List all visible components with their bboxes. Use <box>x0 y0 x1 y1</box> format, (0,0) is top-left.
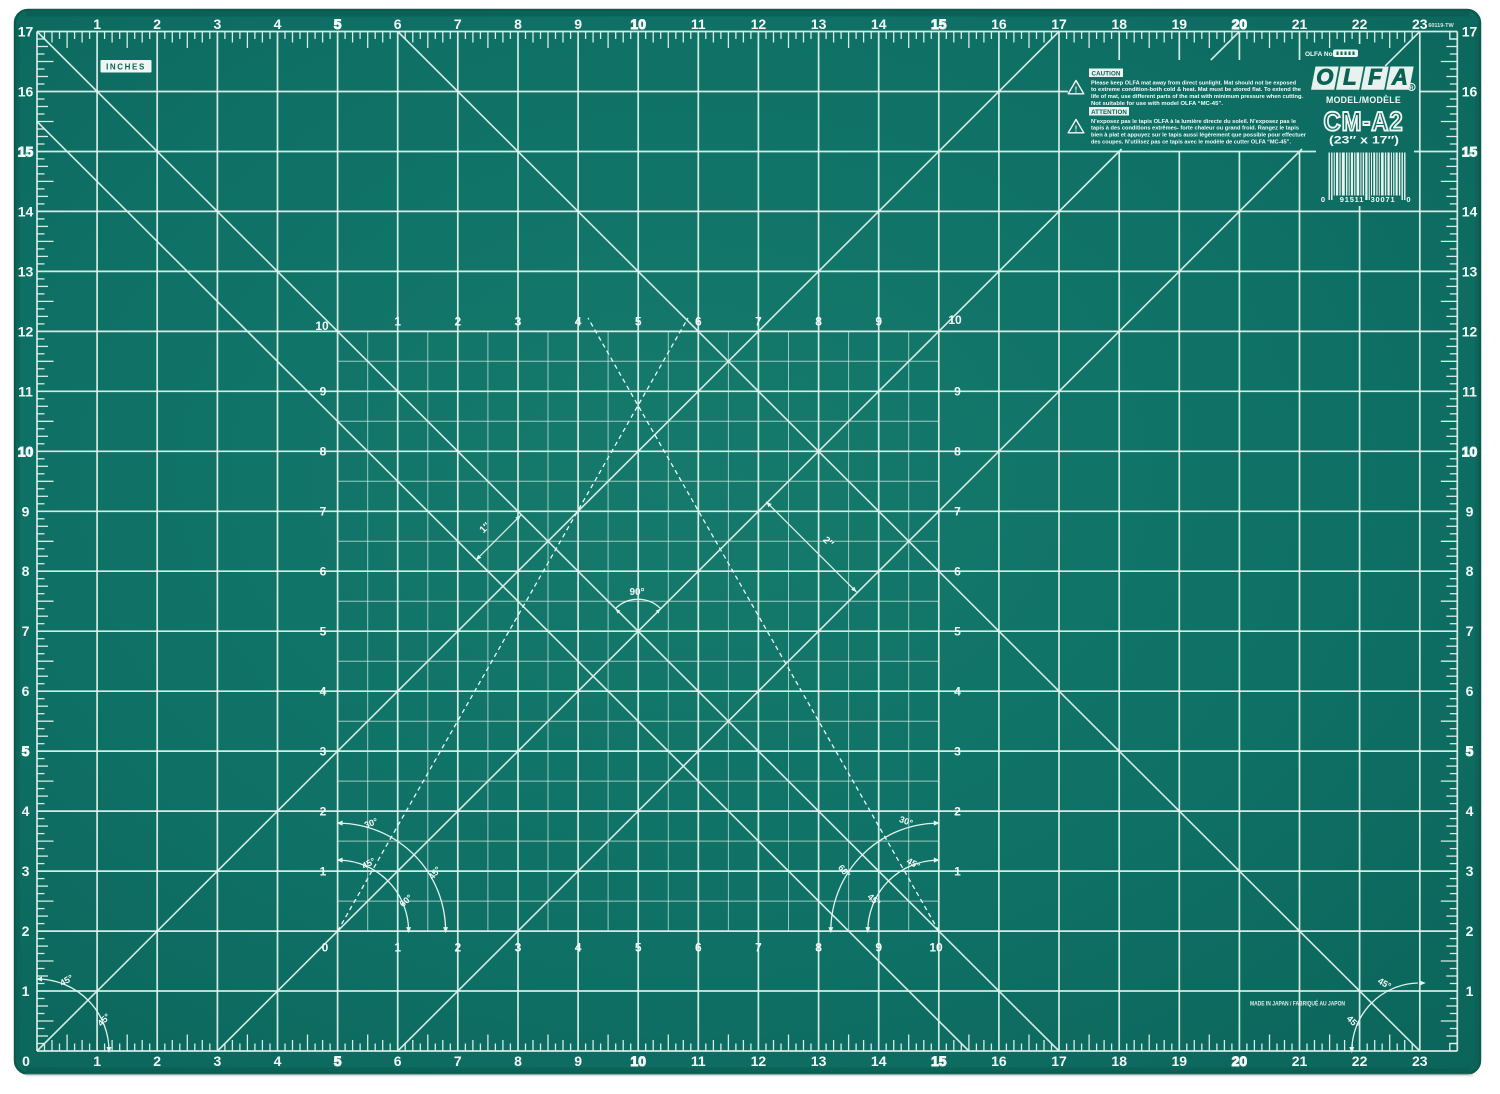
svg-text:6: 6 <box>22 683 30 699</box>
svg-text:9: 9 <box>574 1053 582 1069</box>
svg-text:6: 6 <box>695 315 702 329</box>
svg-text:6: 6 <box>320 565 327 579</box>
svg-text:MADE IN JAPAN / FABRIQUÉ AU JA: MADE IN JAPAN / FABRIQUÉ AU JAPON <box>1250 1000 1345 1008</box>
svg-text:5: 5 <box>334 1053 342 1069</box>
svg-text:5: 5 <box>635 315 642 329</box>
svg-text:8: 8 <box>1466 563 1474 579</box>
svg-text:CAUTION: CAUTION <box>1092 70 1121 77</box>
svg-text:91511: 91511 <box>1340 195 1364 204</box>
svg-text:8: 8 <box>22 563 30 579</box>
svg-text:6: 6 <box>954 565 961 579</box>
svg-text:Not suitable for use with mode: Not suitable for use with model OLFA “MC… <box>1091 101 1223 107</box>
svg-text:to extreme condition-both cold: to extreme condition-both cold & heat. M… <box>1091 87 1302 93</box>
svg-text:4: 4 <box>274 1053 282 1069</box>
svg-text:7: 7 <box>320 505 327 519</box>
svg-text:13: 13 <box>1462 263 1478 279</box>
svg-text:N’exposez pas le tapis OLFA à: N’exposez pas le tapis OLFA à la lumière… <box>1091 119 1297 125</box>
svg-text:1: 1 <box>320 864 327 878</box>
svg-text:3: 3 <box>515 315 522 329</box>
svg-text:14: 14 <box>18 203 34 219</box>
svg-text:2: 2 <box>153 16 161 32</box>
svg-text:4: 4 <box>320 685 327 699</box>
svg-text:8: 8 <box>514 16 522 32</box>
svg-text:7: 7 <box>454 16 462 32</box>
svg-text:3: 3 <box>320 744 327 758</box>
svg-text:8: 8 <box>954 445 961 459</box>
svg-text:6: 6 <box>394 1053 402 1069</box>
svg-text:60119-TW: 60119-TW <box>1428 23 1454 29</box>
svg-text:21: 21 <box>1292 1053 1308 1069</box>
svg-text:L: L <box>1343 65 1356 90</box>
svg-text:14: 14 <box>871 1053 887 1069</box>
svg-text:2: 2 <box>454 941 461 955</box>
svg-text:16: 16 <box>991 1053 1007 1069</box>
svg-text:R: R <box>1410 86 1414 92</box>
svg-text:9: 9 <box>875 941 882 955</box>
svg-text:10: 10 <box>948 313 962 327</box>
svg-text:11: 11 <box>691 1053 706 1069</box>
svg-text:23: 23 <box>1412 16 1428 32</box>
svg-text:9: 9 <box>1466 503 1474 519</box>
svg-text:17: 17 <box>18 24 34 40</box>
svg-text:10: 10 <box>630 1053 646 1069</box>
svg-text:7: 7 <box>22 623 30 639</box>
svg-text:life of mat, use different par: life of mat, use different parts of the … <box>1091 94 1303 100</box>
svg-text:4: 4 <box>954 685 961 699</box>
svg-text:8: 8 <box>320 445 327 459</box>
svg-text:2: 2 <box>454 315 461 329</box>
svg-text:8: 8 <box>815 941 822 955</box>
svg-text:9: 9 <box>875 315 882 329</box>
svg-text:12: 12 <box>18 323 34 339</box>
svg-text:11: 11 <box>1462 383 1477 399</box>
svg-text:10: 10 <box>1462 443 1478 459</box>
svg-text:des coupes. N’utilisez pas ce: des coupes. N’utilisez pas ce tapis avec… <box>1091 140 1291 146</box>
svg-text:5: 5 <box>320 625 327 639</box>
svg-text:5: 5 <box>954 625 961 639</box>
svg-text:tapis à des conditions extrême: tapis à des conditions extrêmes- forte c… <box>1091 126 1300 132</box>
svg-text:4: 4 <box>1466 803 1474 819</box>
svg-text:15: 15 <box>931 1053 947 1069</box>
svg-text:1: 1 <box>954 864 961 878</box>
svg-text:20: 20 <box>1232 16 1248 32</box>
svg-text:10: 10 <box>18 443 34 459</box>
svg-text:13: 13 <box>18 263 34 279</box>
svg-text:12: 12 <box>751 16 767 32</box>
svg-text:16: 16 <box>18 84 34 100</box>
svg-text:16: 16 <box>991 16 1007 32</box>
svg-text:A: A <box>1391 65 1408 90</box>
svg-text:4: 4 <box>575 315 582 329</box>
svg-text:7: 7 <box>454 1053 462 1069</box>
svg-text:5: 5 <box>1466 743 1474 759</box>
svg-text:7: 7 <box>755 941 762 955</box>
svg-text:7: 7 <box>954 505 961 519</box>
svg-text:0: 0 <box>1321 195 1325 204</box>
svg-text:9: 9 <box>574 16 582 32</box>
svg-text:17: 17 <box>1051 16 1067 32</box>
svg-text:3: 3 <box>515 941 522 955</box>
svg-text:0: 0 <box>322 941 329 955</box>
svg-text:8: 8 <box>815 315 822 329</box>
svg-text:!: ! <box>1075 85 1078 94</box>
svg-text:14: 14 <box>1462 203 1478 219</box>
svg-text:(23″ x 17″): (23″ x 17″) <box>1329 135 1399 147</box>
svg-text:0: 0 <box>22 1053 30 1069</box>
svg-text:2: 2 <box>22 923 30 939</box>
svg-text:13: 13 <box>811 1053 827 1069</box>
svg-text:6: 6 <box>394 16 402 32</box>
svg-text:ATTENTION: ATTENTION <box>1091 109 1127 116</box>
svg-text:15: 15 <box>1462 144 1478 160</box>
svg-text:5: 5 <box>635 941 642 955</box>
svg-text:15: 15 <box>18 144 34 160</box>
svg-text:23: 23 <box>1412 1053 1428 1069</box>
svg-text:OLFA No.: OLFA No. <box>1305 51 1335 58</box>
svg-text:21: 21 <box>1292 16 1308 32</box>
svg-text:3: 3 <box>1466 863 1474 879</box>
svg-text:1: 1 <box>394 941 401 955</box>
svg-text:2: 2 <box>1466 923 1474 939</box>
svg-text:9: 9 <box>320 385 327 399</box>
svg-text:7: 7 <box>1466 623 1474 639</box>
svg-text:15: 15 <box>931 16 947 32</box>
svg-text:10: 10 <box>315 319 329 333</box>
svg-text:18: 18 <box>1111 1053 1127 1069</box>
svg-text:O: O <box>1316 65 1333 90</box>
svg-text:INCHES: INCHES <box>106 63 146 72</box>
svg-text:12: 12 <box>1462 323 1478 339</box>
svg-text:30071: 30071 <box>1371 195 1396 204</box>
svg-text:22: 22 <box>1352 1053 1368 1069</box>
svg-text:1: 1 <box>93 1053 101 1069</box>
svg-text:6: 6 <box>695 941 702 955</box>
svg-text:3: 3 <box>22 863 30 879</box>
svg-text:20: 20 <box>1232 1053 1248 1069</box>
svg-text:1: 1 <box>394 315 401 329</box>
svg-text:13: 13 <box>811 16 827 32</box>
svg-text:2: 2 <box>320 804 327 818</box>
svg-text:9: 9 <box>22 503 30 519</box>
svg-text:4: 4 <box>274 16 282 32</box>
svg-text:6: 6 <box>1466 683 1474 699</box>
svg-text:5: 5 <box>334 16 342 32</box>
svg-text:Please keep OLFA mat away from: Please keep OLFA mat away from direct su… <box>1091 80 1296 86</box>
svg-text:CM-A2: CM-A2 <box>1324 107 1404 137</box>
svg-text:17: 17 <box>1051 1053 1067 1069</box>
svg-text:18: 18 <box>1111 16 1127 32</box>
svg-text:10: 10 <box>630 16 646 32</box>
svg-text:10: 10 <box>929 941 943 955</box>
svg-text:1: 1 <box>93 16 101 32</box>
svg-text:11: 11 <box>691 16 706 32</box>
svg-text:19: 19 <box>1172 1053 1188 1069</box>
svg-text:0: 0 <box>1406 195 1410 204</box>
svg-text:4: 4 <box>22 803 30 819</box>
svg-text:11: 11 <box>18 383 33 399</box>
svg-text:4: 4 <box>575 941 582 955</box>
svg-text:19: 19 <box>1172 16 1188 32</box>
svg-text:8: 8 <box>514 1053 522 1069</box>
svg-text:1: 1 <box>1466 983 1474 999</box>
svg-text:3: 3 <box>214 1053 222 1069</box>
svg-text:MODEL/MODÈLE: MODEL/MODÈLE <box>1326 95 1401 105</box>
svg-text:7: 7 <box>755 315 762 329</box>
svg-text:12: 12 <box>751 1053 767 1069</box>
svg-text:2: 2 <box>954 804 961 818</box>
svg-text:2: 2 <box>153 1053 161 1069</box>
svg-text:9: 9 <box>954 385 961 399</box>
svg-text:5: 5 <box>22 743 30 759</box>
svg-text:17: 17 <box>1462 24 1478 40</box>
svg-text:1: 1 <box>22 983 30 999</box>
svg-text:16: 16 <box>1462 84 1478 100</box>
svg-text:F: F <box>1368 65 1382 90</box>
svg-text:14: 14 <box>871 16 887 32</box>
svg-text:!: ! <box>1075 124 1078 133</box>
svg-text:90°: 90° <box>629 587 644 598</box>
svg-text:3: 3 <box>954 744 961 758</box>
svg-text:3: 3 <box>214 16 222 32</box>
svg-text:22: 22 <box>1352 16 1368 32</box>
svg-text:bien à plat et appuyez sur le: bien à plat et appuyez sur le tapis auss… <box>1091 133 1307 139</box>
